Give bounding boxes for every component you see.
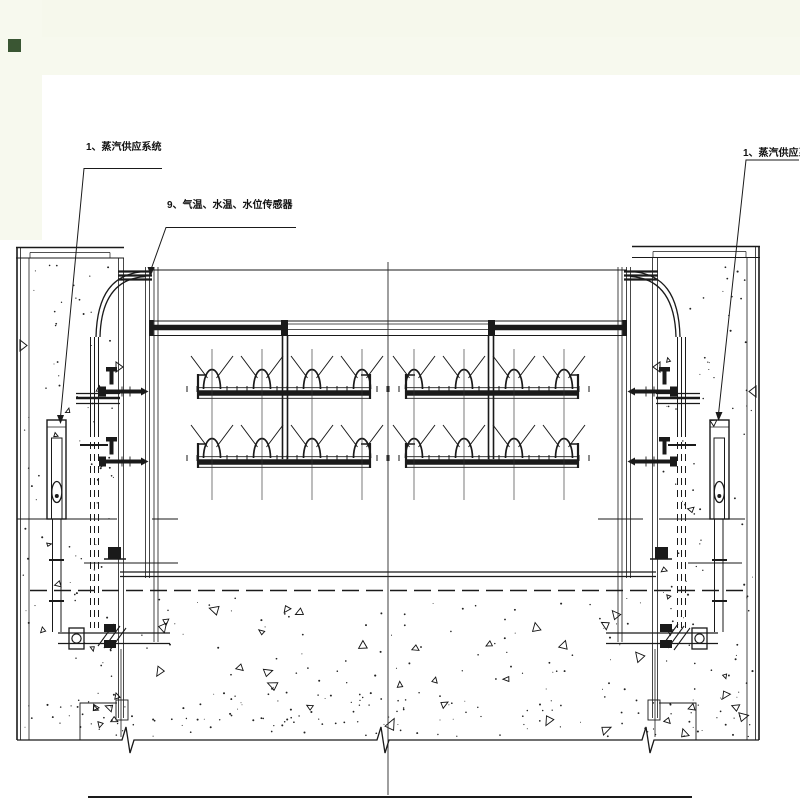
label-sensors: 9、气温、水温、水位传感器: [167, 198, 294, 211]
leader-steam-supply-right: [716, 160, 800, 421]
sensor-conduit-right: [624, 272, 680, 338]
bottom-pipe-right: [606, 624, 718, 650]
leader-sensors: [148, 228, 297, 277]
label-steam-supply-right: 1、蒸汽供应系统: [743, 146, 800, 159]
steam-supply-device-left: [47, 420, 66, 632]
drawing-canvas: 1、蒸汽供应系统 9、气温、水温、水位传感器 1、蒸汽供应系统: [0, 0, 800, 800]
sensor-conduit-left: [96, 272, 152, 338]
label-steam-supply-left: 1、蒸汽供应系统: [86, 140, 162, 153]
steam-supply-device-right: [710, 420, 729, 632]
bottom-pipe-left: [58, 624, 170, 650]
gate-heating-elevation-drawing: 1、蒸汽供应系统 9、气温、水温、水位传感器 1、蒸汽供应系统: [0, 0, 800, 800]
